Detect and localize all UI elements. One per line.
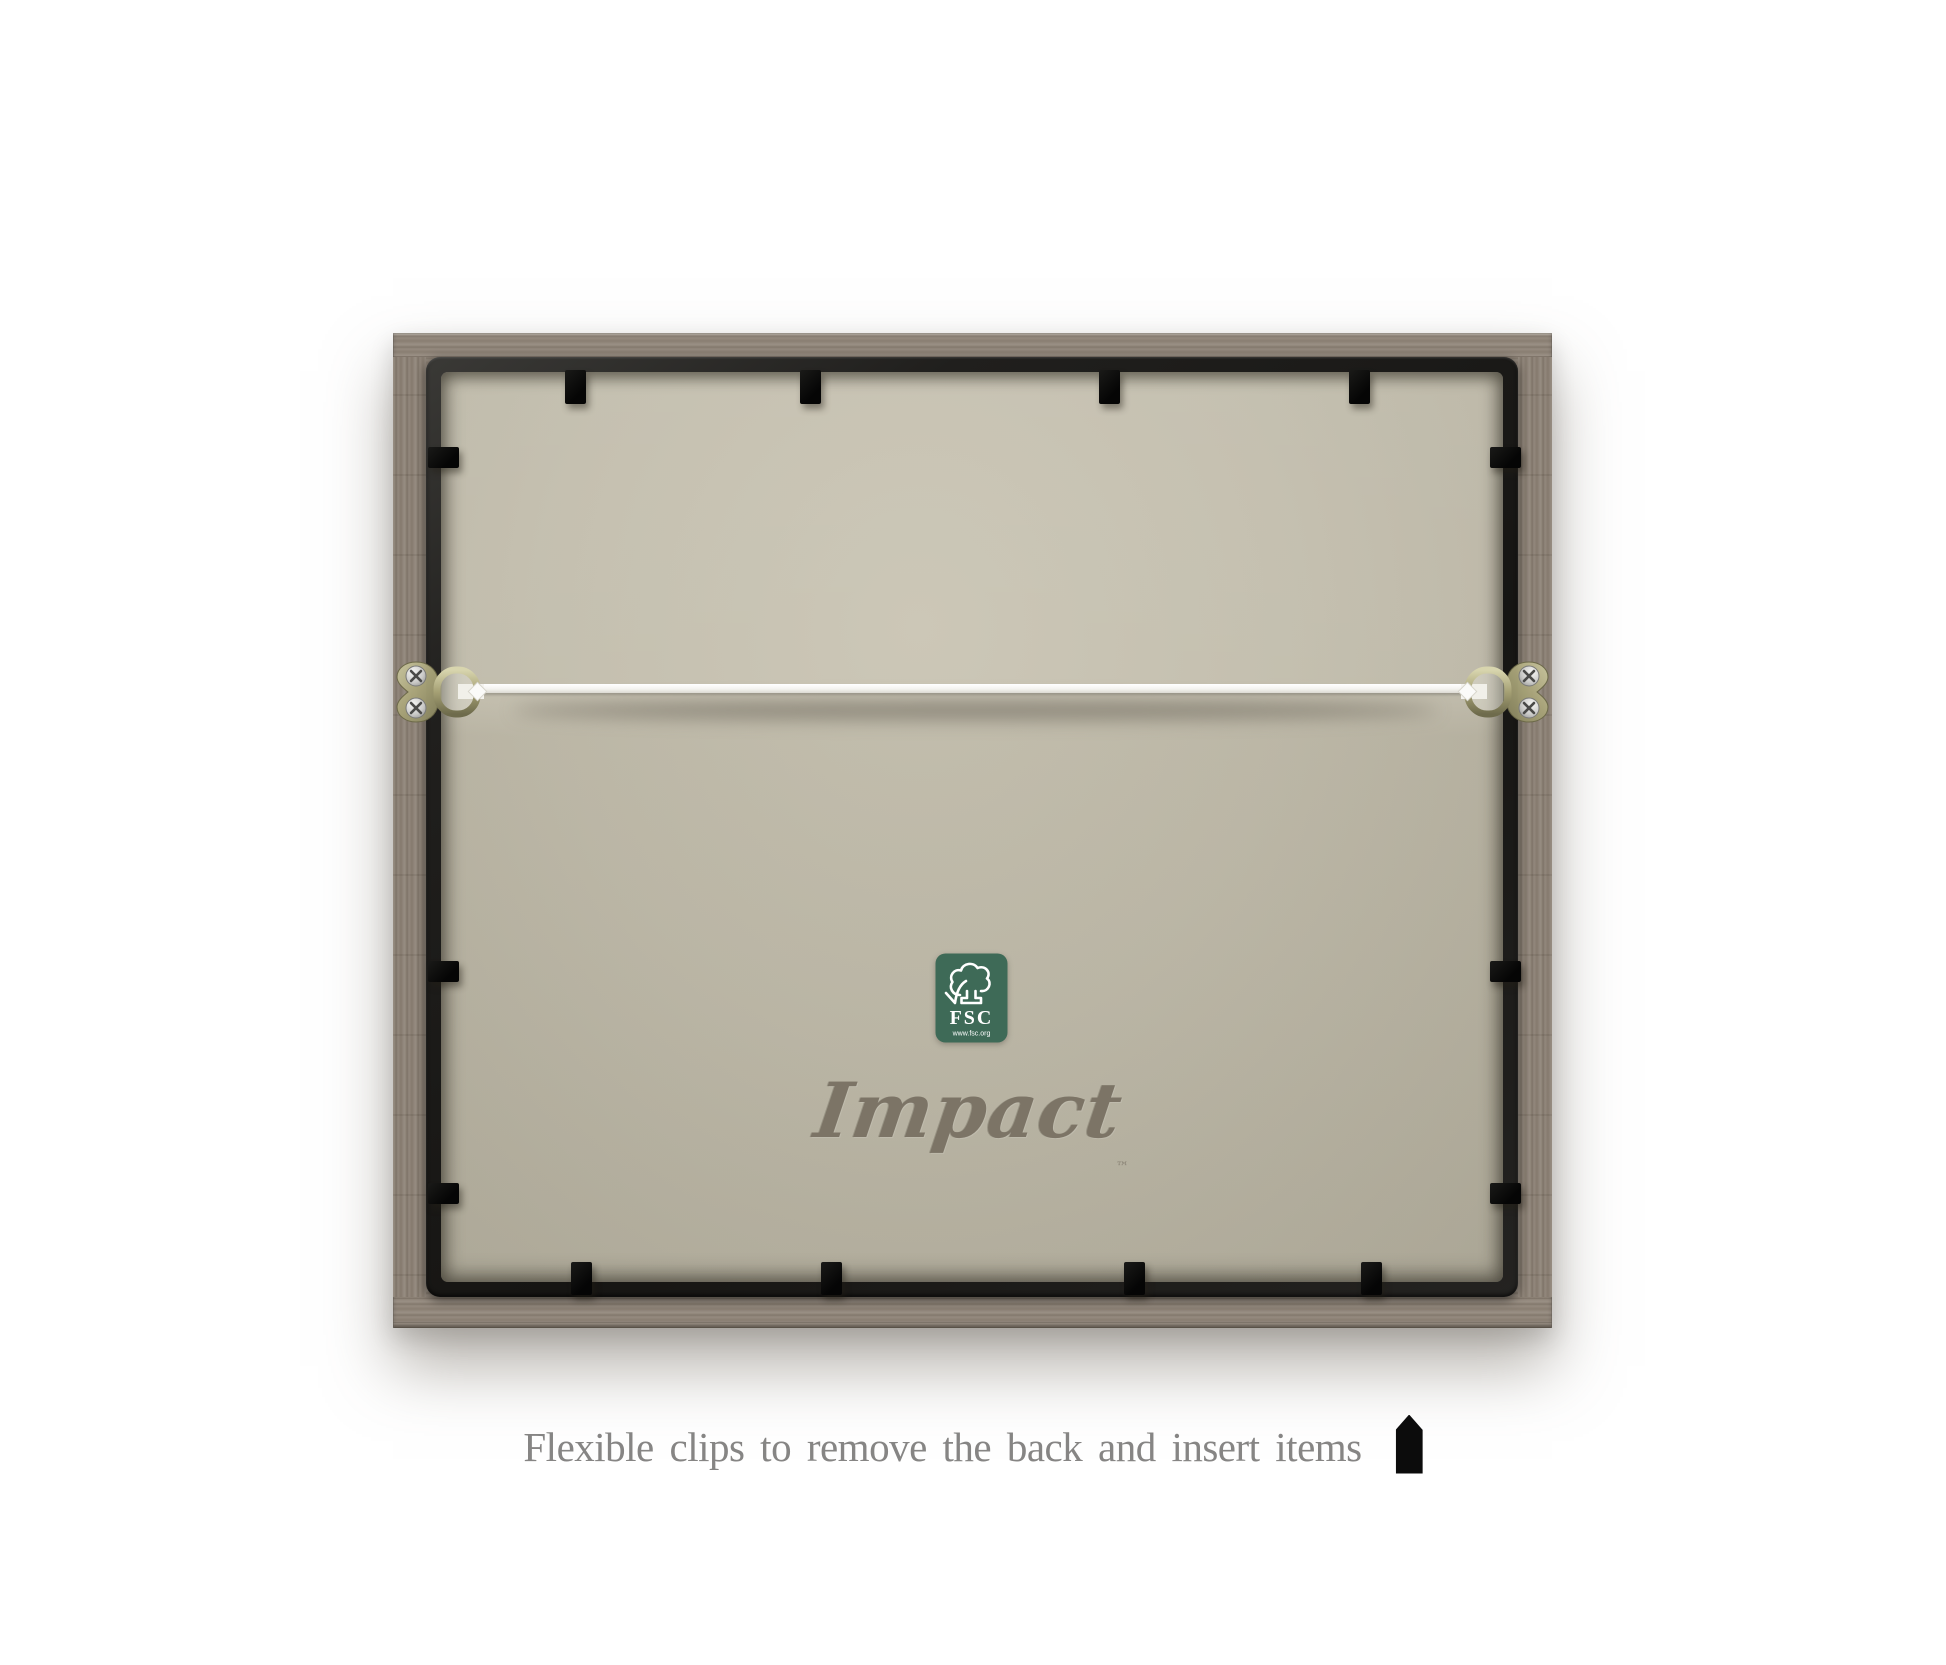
retainer-clip (428, 1183, 459, 1204)
d-ring-hanger-left (395, 661, 491, 723)
retainer-clip (565, 370, 586, 404)
fsc-badge-icon: FSC www.fsc.org (935, 953, 1008, 1043)
brand-name-text: Impact (811, 1071, 1128, 1151)
d-ring-hanger-icon (395, 661, 491, 723)
screw-icon (1519, 698, 1539, 718)
flexible-clip-icon (1396, 1415, 1423, 1474)
fsc-certification-badge: FSC www.fsc.org (935, 953, 1008, 1043)
retainer-clip (821, 1262, 842, 1295)
fsc-website: www.fsc.org (952, 1031, 991, 1038)
caption-text: Flexible clips to remove the back and in… (523, 1423, 1361, 1471)
d-ring-hanger-icon (1454, 661, 1550, 723)
retainer-clip (428, 447, 459, 468)
retainer-clip (1099, 370, 1120, 404)
retainer-clip (1361, 1262, 1382, 1295)
retainer-clip (800, 370, 821, 404)
screw-icon (406, 698, 426, 718)
d-ring-hanger-right (1454, 661, 1550, 723)
fsc-acronym: FSC (950, 1007, 994, 1029)
retainer-clip (1349, 370, 1370, 404)
brand-logo: Impact™ (393, 1071, 1552, 1175)
screw-icon (406, 666, 426, 686)
trademark-symbol: ™ (1116, 1160, 1129, 1175)
wire-shadow (513, 700, 1438, 720)
product-photo: FSC www.fsc.org Impact™ Flexible clips t… (0, 0, 1946, 1665)
retainer-clip (1490, 447, 1521, 468)
picture-frame-back: FSC www.fsc.org Impact™ (393, 333, 1552, 1328)
hanging-wire (479, 684, 1466, 693)
retainer-clip (1490, 1183, 1521, 1204)
retainer-clip (1124, 1262, 1145, 1295)
caption: Flexible clips to remove the back and in… (0, 1404, 1946, 1490)
retainer-clip (571, 1262, 592, 1295)
retainer-clip (428, 961, 459, 982)
screw-icon (1519, 666, 1539, 686)
retainer-clip (1490, 961, 1521, 982)
